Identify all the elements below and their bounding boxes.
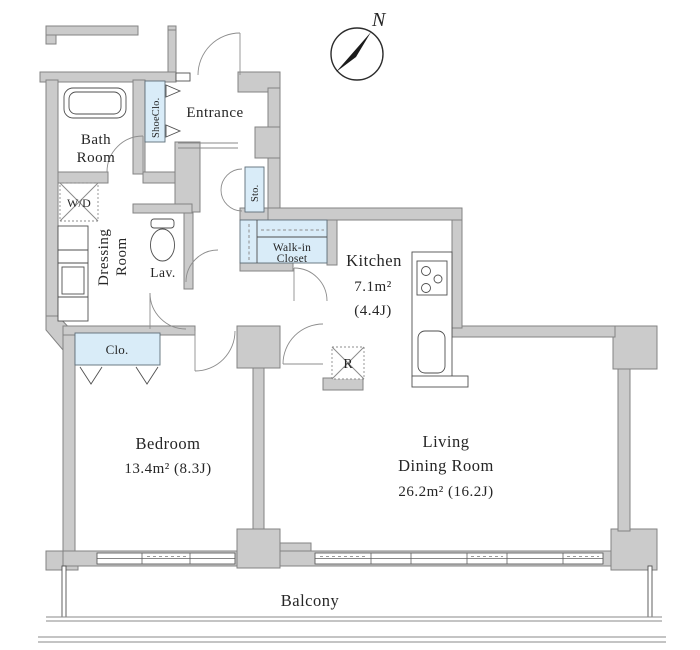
dressing-label-2: Room [114, 237, 130, 276]
wic-label-2: Closet [277, 253, 308, 265]
shoe-closet-folding-door-top [166, 85, 180, 97]
compass: N [331, 9, 387, 80]
dressing-door [150, 293, 186, 329]
living-window [315, 553, 603, 564]
unit-top-wall [40, 72, 176, 82]
kitchen-top-wall [268, 208, 462, 220]
bath-label-2: Room [77, 150, 116, 166]
lav-top-wall [133, 204, 192, 213]
center-pillar-top [237, 326, 280, 368]
storage-double-door [221, 169, 242, 211]
entrance-label: Entrance [186, 105, 243, 121]
bedroom-window [97, 553, 235, 564]
hall-left-wall [175, 142, 200, 212]
storage-label: Sto. [250, 185, 261, 202]
corridor-rail-post [168, 30, 176, 74]
bedroom-label: Bedroom [136, 434, 201, 453]
bath-bottom-wall-left [58, 172, 108, 183]
lav-label: Lav. [150, 265, 176, 280]
door-threshold [176, 73, 190, 81]
bathtub-inner [69, 92, 121, 114]
walls [40, 26, 657, 570]
walk-in-closet-door [294, 268, 327, 301]
balcony-left-post [62, 566, 66, 617]
fridge-step-wall [323, 378, 363, 390]
windows [97, 553, 603, 564]
shoe-closet-label: ShoeClo. [151, 98, 162, 138]
bedroom-door [195, 331, 235, 371]
compass-north-label: N [371, 9, 387, 31]
center-pillar-bottom [237, 529, 280, 568]
living-area: 26.2m² (16.2J) [398, 484, 493, 500]
front-door [198, 33, 240, 75]
washer-dryer-label: W/D [67, 196, 91, 210]
living-door [283, 324, 323, 364]
kitchen-right-wall [452, 220, 462, 328]
storage-units [75, 81, 327, 384]
bedroom-area: 13.4m² (8.3J) [124, 461, 211, 477]
closet-folding-door-right [136, 367, 158, 384]
corridor-rail-left [46, 26, 138, 35]
closet-folding-door-left [80, 367, 102, 384]
bedroom-left-wall [63, 334, 75, 554]
washstand [58, 226, 88, 321]
bedroom-living-divider [253, 368, 264, 531]
top-right-pillar [613, 326, 657, 369]
bottom-right-pillar [611, 529, 657, 570]
bath-label-1: Bath [81, 132, 111, 148]
balcony-label: Balcony [281, 591, 340, 610]
entrance-pillar [255, 127, 280, 158]
closet-label: Clo. [106, 342, 129, 357]
living-top-wall [452, 326, 615, 337]
balcony [38, 566, 666, 642]
refrigerator-label: R [343, 357, 353, 372]
lav-right-wall [184, 213, 193, 289]
living-label-2: Dining Room [398, 456, 494, 475]
living-right-wall [618, 369, 630, 531]
kitchen-label: Kitchen [346, 251, 402, 270]
toilet [151, 219, 175, 261]
balcony-right-post [648, 566, 652, 617]
dressing-label-1: Dressing [96, 229, 112, 286]
floor-plan: N Entrance Bath Room ShoeClo. Sto. W/D D… [0, 0, 700, 650]
wic-right-wall [327, 220, 337, 265]
shoe-closet-folding-door-bottom [166, 125, 180, 137]
left-wall-upper [46, 80, 58, 320]
kitchen-area-sqm: 7.1m² [354, 279, 391, 295]
living-label-1: Living [423, 432, 470, 451]
kitchen-area-jo: (4.4J) [354, 303, 392, 319]
bath-bottom-wall-right [143, 172, 177, 183]
floor-plan-canvas: N Entrance Bath Room ShoeClo. Sto. W/D D… [0, 0, 700, 650]
